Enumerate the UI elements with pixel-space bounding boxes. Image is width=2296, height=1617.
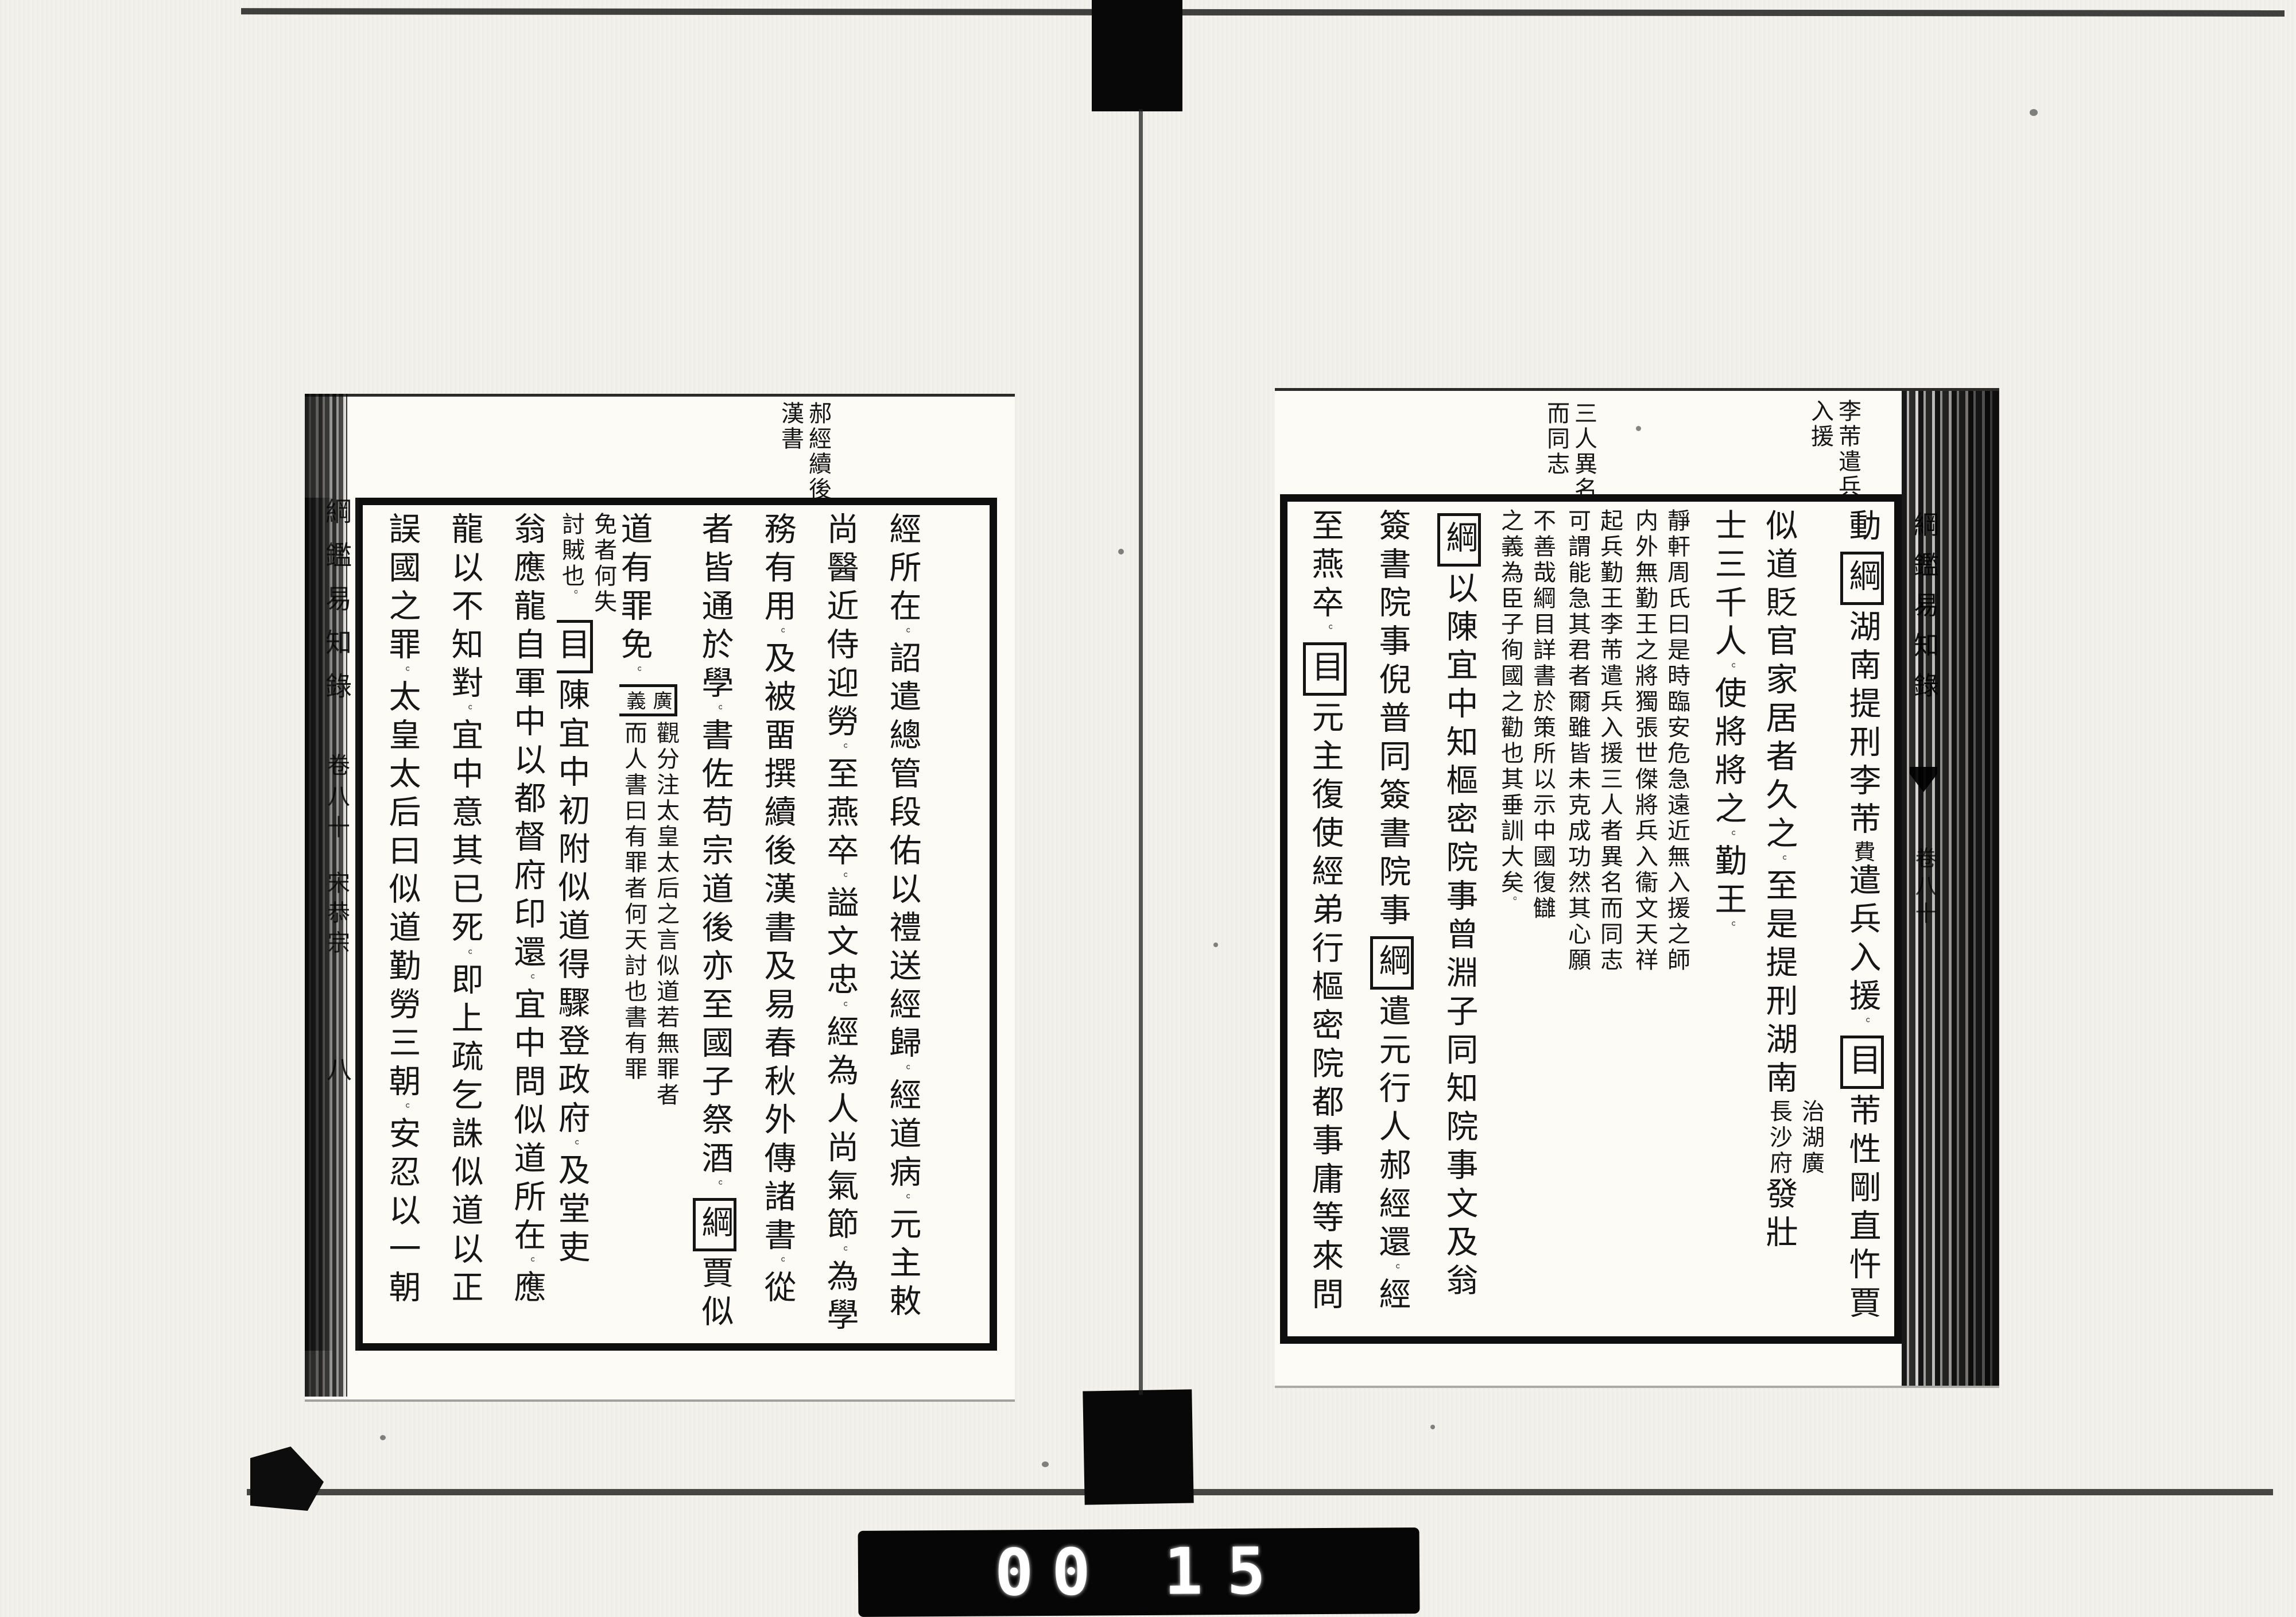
reading-circle-mark: 。: [457, 949, 472, 963]
column-text: 尚醫近侍迎勞: [822, 512, 858, 743]
microfilm-scan: 郝經續後 漢書 經所在。詔遣總管段佑以禮送經歸。經道病。元主敕尚醫近侍迎勞。至燕…: [0, 0, 2296, 1617]
reading-circle-mark: 。: [1855, 1017, 1870, 1031]
margin-note-line: 漢書: [776, 401, 804, 502]
column-text: 長沙府: [1766, 1099, 1792, 1177]
interlinear-note-pair: 起兵勤王李芾遣兵入援三人者異名而同志可謂能急其君者爾雖皆未克成功然其心願: [1561, 509, 1626, 974]
frame-counter-display: 0 0 1 5: [858, 1527, 1420, 1617]
reading-circle-mark: 。: [832, 743, 847, 757]
column-text: 經為人尚氣節: [822, 1015, 858, 1246]
column-text: 簽書院事倪普同簽書院事: [1374, 509, 1410, 932]
column-text: 宜中問似道所在: [509, 987, 545, 1257]
column-text: 不善哉綱目詳書於策所以示中國復讎: [1530, 509, 1556, 922]
column-text: 之義為臣子徇國之勸也其垂訓大矣: [1498, 509, 1523, 896]
interlinear-note-pair: 治湖廣長沙府: [1763, 1099, 1827, 1177]
column-text: 至燕卒: [822, 757, 858, 872]
reading-circle-mark: 。: [626, 666, 641, 680]
note-subcolumn-left: 可謂能急其君者爾雖皆未克成功然其心願: [1561, 509, 1593, 974]
film-speck: [1430, 1425, 1435, 1429]
column-text: 似道貶官家居者久之: [1761, 509, 1797, 855]
interlinear-note-pair: 免者何失討賊也。: [557, 512, 619, 615]
film-edge-line-top: [241, 8, 2285, 17]
interlinear-note-pair: 不善哉綱目詳書於策所以示中國復讎之義為臣子徇國之勸也其垂訓大矣。: [1494, 509, 1558, 922]
interlinear-note-pair: 觀分注太皇太后之言似道若無罪者而人書曰有罪者何天討也書有罪: [619, 721, 682, 1108]
marker-char: 廣: [647, 691, 673, 710]
reading-circle-mark: 。: [770, 627, 785, 641]
text-column: 翁應龍自軍中以都督府印還。宜中問似道所在。應: [494, 505, 557, 1343]
column-text: 遣兵入援: [1844, 863, 1880, 1017]
column-text: 芾性剛直忤賈: [1844, 1093, 1880, 1324]
column-text: 至是提刑湖南: [1761, 868, 1797, 1099]
column-text: 元主敕: [885, 1207, 920, 1323]
column-text: 經道病: [885, 1078, 920, 1193]
column-text: 經所在: [885, 512, 920, 627]
note-subcolumn-right: 治湖廣: [1795, 1099, 1827, 1177]
text-column: 似道貶官家居者久之。至是提刑湖南治湖廣長沙府發壯: [1760, 502, 1827, 1336]
text-column: 士三千人。使將將之。勤王。: [1693, 502, 1760, 1336]
reading-circle-mark: 。: [832, 872, 847, 886]
left-page-edge-streaks: [305, 394, 347, 1397]
counter-digit: 1: [1164, 1540, 1203, 1604]
film-speck: [2030, 109, 2038, 116]
note-subcolumn-right: 靜軒周氏曰是時臨安危急遠近無入援之師: [1661, 509, 1693, 974]
counter-digit: 0: [995, 1541, 1034, 1605]
text-column: 尚醫近侍迎勞。至燕卒。謚文忠。經為人尚氣節。為學: [807, 505, 870, 1343]
column-text: 内外無勤王之將獨張世傑將兵入衞文天祥: [1632, 509, 1658, 974]
column-text: 賈似: [697, 1256, 732, 1333]
text-column: 者皆通於學。書佐苟宗道後亦至國子祭酒。綱賈似: [682, 505, 744, 1343]
margin-note-line: 三人異名: [1569, 401, 1597, 502]
column-text: 免者何失: [591, 512, 616, 615]
left-book-page: 郝經續後 漢書 經所在。詔遣總管段佑以禮送經歸。經道病。元主敕尚醫近侍迎勞。至燕…: [305, 394, 1015, 1402]
note-subcolumn-left: 討賊也。: [557, 512, 587, 615]
note-subcolumn-left: 而人書曰有罪者何天討也書有罪: [619, 721, 650, 1108]
note-subcolumn-left: 長沙府: [1763, 1099, 1795, 1177]
column-text: 而人書曰有罪者何天討也書有罪: [621, 721, 647, 1083]
column-text: 發壯: [1761, 1177, 1797, 1254]
column-text: 以陳宜中知樞密院事曾淵子同知院事文及翁: [1441, 571, 1477, 1302]
text-column: 簽書院事倪普同簽書院事綱遣元行人郝經還。經: [1357, 502, 1424, 1336]
column-text: 可謂能急其君者爾雖皆未克成功然其心願: [1565, 509, 1591, 974]
column-text: 道有罪免: [619, 512, 651, 666]
margin-note-line: 李芾遣兵: [1833, 399, 1861, 500]
fold-gutter-band: 綱鑑易知錄 卷八十: [1902, 391, 1999, 1386]
reading-circle-mark: 。: [565, 590, 577, 601]
pronunciation-gloss: 費: [1850, 840, 1874, 863]
right-text-frame: 動綱湖南提刑李芾費遣兵入援。目芾性剛直忤賈似道貶官家居者久之。至是提刑湖南治湖廣…: [1280, 494, 1902, 1344]
column-text: 士三千人: [1710, 509, 1746, 662]
column-text: 遣元行人郝經還: [1374, 994, 1410, 1263]
entry-marker-box: 目: [557, 620, 593, 673]
column-text: 者皆通於學: [697, 512, 732, 704]
margin-note-li-fu: 李芾遣兵 入援: [1806, 399, 1861, 500]
column-text: 起兵勤王李芾遣兵入援三人者異名而同志: [1597, 509, 1623, 974]
film-frame-divider-line: [1139, 109, 1143, 1395]
column-text: 經: [1374, 1277, 1410, 1316]
text-column: 不善哉綱目詳書於策所以示中國復讎之義為臣子徇國之勸也其垂訓大矣。: [1491, 502, 1558, 1336]
reading-circle-mark: 。: [895, 1064, 910, 1078]
text-column: 經所在。詔遣總管段佑以禮送經歸。經道病。元主敕: [870, 505, 932, 1343]
column-text: 應: [509, 1270, 545, 1309]
note-subcolumn-right: 觀分注太皇太后之言似道若無罪者: [650, 721, 682, 1108]
column-text: 討賊也: [559, 512, 584, 590]
reading-circle-mark: 。: [1317, 624, 1332, 638]
reading-circle-mark: 。: [770, 1257, 785, 1270]
column-text: 龍以不知對: [447, 512, 482, 704]
reading-circle-mark: 。: [457, 704, 472, 718]
film-speck: [1636, 426, 1641, 431]
film-frame-tab-top: [1092, 0, 1182, 111]
reading-circle-mark: 。: [895, 627, 910, 641]
reading-circle-mark: 。: [895, 1193, 910, 1207]
text-column: 起兵勤王李芾遣兵入援三人者異名而同志可謂能急其君者爾雖皆未克成功然其心願: [1558, 502, 1626, 1336]
margin-note-line: 郝經續後: [804, 401, 831, 502]
column-text: 為學: [822, 1259, 858, 1336]
reading-circle-mark: 。: [1720, 921, 1735, 934]
film-speck: [1118, 549, 1124, 554]
note-subcolumn-left: 之義為臣子徇國之勸也其垂訓大矣。: [1494, 509, 1526, 922]
film-speck: [1213, 943, 1218, 947]
reading-circle-mark: 。: [519, 1257, 534, 1270]
margin-note-line: 入援: [1806, 399, 1833, 500]
right-columns: 動綱湖南提刑李芾費遣兵入援。目芾性剛直忤賈似道貶官家居者久之。至是提刑湖南治湖廣…: [1287, 502, 1894, 1336]
commentary-marker-box: 廣義: [619, 684, 677, 716]
note-subcolumn-right: 不善哉綱目詳書於策所以示中國復讎: [1526, 509, 1558, 922]
text-column: 免者何失討賊也。目陳宜中初附似道得驟登政府。及堂吏: [557, 505, 619, 1343]
column-text: 務有用: [759, 512, 795, 627]
reading-circle-mark: 。: [1720, 830, 1735, 844]
left-text-frame: 經所在。詔遣總管段佑以禮送經歸。經道病。元主敕尚醫近侍迎勞。至燕卒。謚文忠。經為…: [355, 498, 997, 1351]
column-text: 動: [1844, 509, 1880, 547]
reading-circle-mark: 。: [394, 1103, 409, 1116]
column-text: 謚文忠: [822, 886, 858, 1001]
reading-circle-mark: 。: [707, 704, 722, 718]
text-column: 綱以陳宜中知樞密院事曾淵子同知院事文及翁: [1424, 502, 1491, 1336]
reading-circle-mark: 。: [1720, 662, 1735, 676]
entry-marker-box: 綱: [1370, 936, 1414, 990]
text-column: 龍以不知對。宜中意其已死。即上疏乞誅似道以正: [432, 505, 494, 1343]
column-text: 靜軒周氏曰是時臨安危急遠近無入援之師: [1664, 509, 1690, 974]
reading-circle-mark: 。: [564, 1139, 579, 1153]
margin-note-line: 而同志: [1542, 401, 1569, 502]
note-subcolumn-left: 内外無勤王之將獨張世傑將兵入衞文天祥: [1628, 509, 1661, 974]
column-text: 勤王: [1710, 844, 1746, 921]
text-column: 務有用。及被畱撰續後漢書及易春秋外傳諸書。從: [744, 505, 807, 1343]
column-text: 翁應龍自軍中以都督府印還: [509, 512, 545, 974]
reading-circle-mark: 。: [1504, 896, 1517, 908]
column-text: 觀分注太皇太后之言似道若無罪者: [653, 721, 679, 1108]
entry-marker-box: 綱: [693, 1198, 736, 1251]
counter-digit: 0: [1052, 1541, 1091, 1605]
entry-marker-box: 綱: [1840, 552, 1884, 605]
column-text: 治湖廣: [1798, 1099, 1824, 1177]
left-columns: 經所在。詔遣總管段佑以禮送經歸。經道病。元主敕尚醫近侍迎勞。至燕卒。謚文忠。經為…: [363, 505, 990, 1343]
column-text: 宜中意其已死: [447, 718, 482, 949]
reading-circle-mark: 。: [707, 1180, 722, 1193]
note-subcolumn-right: 起兵勤王李芾遣兵入援三人者異名而同志: [1593, 509, 1626, 974]
column-text: 及被畱撰續後漢書及易春秋外傳諸書: [759, 641, 795, 1257]
entry-marker-box: 目: [1303, 642, 1347, 696]
reading-circle-mark: 。: [394, 666, 409, 680]
column-text: 誤國之罪: [384, 512, 420, 666]
entry-marker-box: 綱: [1437, 513, 1481, 567]
column-text: 從: [759, 1270, 795, 1309]
column-text: 使將將之: [1710, 676, 1746, 830]
right-book-page: 李芾遣兵 入援 三人異名 而同志 動綱湖南提刑李芾費遣兵入援。目芾性剛直忤賈似道…: [1275, 388, 1999, 1388]
column-text: 至燕卒: [1307, 509, 1343, 624]
text-column: 誤國之罪。太皇太后曰似道勤勞三朝。安忍以一朝: [369, 505, 432, 1343]
film-frame-tab-bottom: [1083, 1389, 1193, 1504]
text-column: 靜軒周氏曰是時臨安危急遠近無入援之師内外無勤王之將獨張世傑將兵入衞文天祥: [1626, 502, 1693, 1336]
reading-circle-mark: 。: [1771, 855, 1786, 868]
margin-note-three-men: 三人異名 而同志: [1542, 401, 1597, 502]
column-text: 書佐苟宗道後亦至國子祭酒: [697, 718, 732, 1180]
note-subcolumn-right: 免者何失: [587, 512, 619, 615]
film-speck: [380, 1435, 386, 1440]
reading-circle-mark: 。: [1384, 1263, 1399, 1277]
column-text: 即上疏乞誅似道以正: [447, 963, 482, 1309]
text-column: 道有罪免。廣義觀分注太皇太后之言似道若無罪者而人書曰有罪者何天討也書有罪: [619, 505, 682, 1343]
fold-shadow-streaks: [1902, 391, 1999, 1386]
reading-circle-mark: 。: [519, 974, 534, 987]
column-text: 太皇太后曰似道勤勞三朝: [384, 680, 420, 1103]
column-text: 元主復使經弟行樞密院都事庸等來問: [1307, 700, 1343, 1316]
reading-circle-mark: 。: [832, 1001, 847, 1015]
column-text: 湖南提刑李芾: [1844, 610, 1880, 840]
reading-circle-mark: 。: [832, 1246, 847, 1259]
entry-marker-box: 目: [1840, 1036, 1884, 1089]
column-text: 陳宜中初附似道得驟登政府: [557, 678, 589, 1139]
film-speck: [1042, 1461, 1049, 1467]
marker-char: 義: [620, 691, 647, 710]
margin-note-hao-jing: 郝經續後 漢書: [776, 401, 831, 502]
column-text: 及堂吏: [557, 1153, 589, 1269]
interlinear-note-pair: 靜軒周氏曰是時臨安危急遠近無入援之師内外無勤王之將獨張世傑將兵入衞文天祥: [1628, 509, 1693, 974]
column-text: 詔遣總管段佑以禮送經歸: [885, 641, 920, 1064]
text-column: 至燕卒。目元主復使經弟行樞密院都事庸等來問: [1290, 502, 1357, 1336]
counter-digit: 5: [1227, 1540, 1266, 1604]
film-corner-smudge: [250, 1447, 324, 1511]
film-edge-line-bottom: [247, 1489, 2273, 1495]
text-column: 動綱湖南提刑李芾費遣兵入援。目芾性剛直忤賈: [1827, 502, 1894, 1336]
column-text: 安忍以一朝: [384, 1116, 420, 1309]
